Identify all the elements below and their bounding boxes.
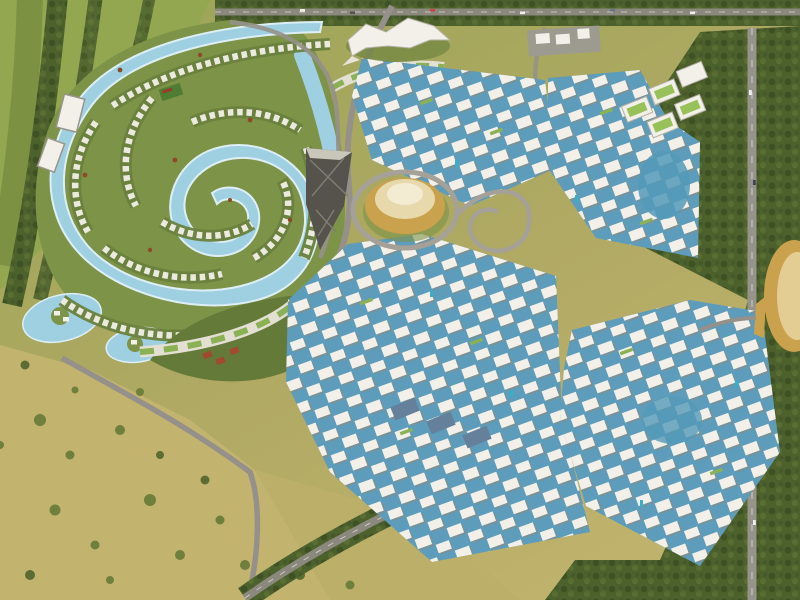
masterplan-aerial-render xyxy=(0,0,800,600)
scene-svg xyxy=(0,0,800,600)
